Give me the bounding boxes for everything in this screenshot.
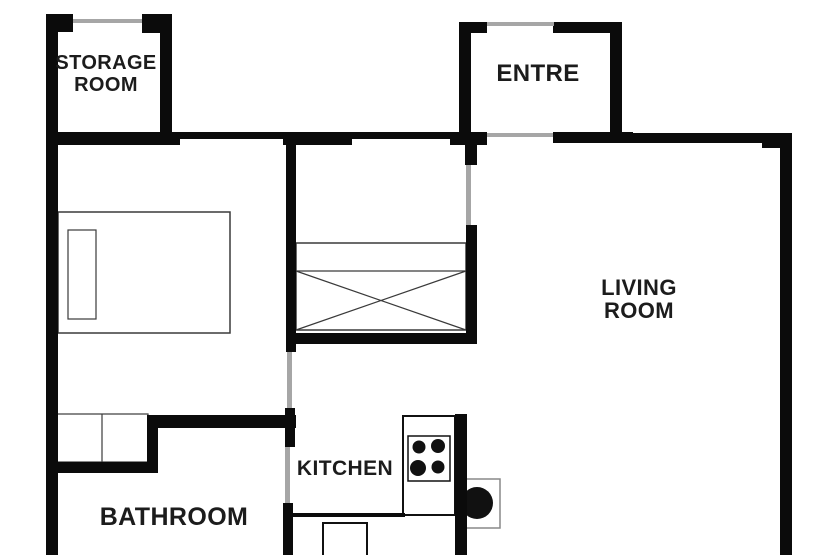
kitchen-label: KITCHEN	[297, 458, 393, 480]
top-wall-thin-2	[352, 132, 450, 139]
hall-living-door	[466, 165, 471, 225]
storage-top-left-tab	[46, 14, 73, 32]
hall-bottom-wall	[287, 333, 477, 344]
kitchen-left-wall-lower	[283, 503, 293, 555]
entre-left-wall	[459, 22, 471, 135]
bed-pillow	[68, 230, 96, 319]
stove-burner-1	[413, 441, 426, 454]
bathroom-west-wall	[57, 462, 158, 473]
hall-right-stub	[465, 143, 477, 165]
storage-room-label-line2: ROOM	[74, 74, 138, 96]
bathroom-top-wall	[148, 415, 296, 428]
kitchen-appliance	[323, 523, 367, 555]
entre-entry-door	[487, 22, 554, 26]
entre-label: ENTRE	[496, 62, 579, 86]
bathroom-label-line1: BATHROOM	[100, 503, 249, 531]
top-wall-thin-1	[180, 132, 283, 139]
bathroom-label: BATHROOM	[100, 504, 249, 530]
kitchen-label-line1: KITCHEN	[297, 457, 393, 480]
storage-room-label-line1: STORAGE	[55, 52, 156, 74]
living-room-label-line2: ROOM	[604, 298, 674, 323]
hall-left-wall	[286, 136, 296, 352]
entre-label-line1: ENTRE	[496, 60, 579, 87]
hall-right-wall	[466, 225, 477, 343]
bathroom-door	[285, 447, 290, 503]
top-wall-west	[46, 132, 180, 145]
floor-plan: STORAGE ROOM ENTRE LIVING ROOM KITCHEN B…	[0, 0, 831, 555]
bedroom-door	[287, 352, 292, 408]
entre-right-wall	[610, 22, 622, 135]
stove-burner-2	[431, 439, 445, 453]
storage-room-label: STORAGE ROOM	[55, 52, 156, 96]
kitchen-island-wall	[455, 414, 467, 555]
entre-living-opening	[487, 133, 553, 137]
entre-top-left-tab	[459, 22, 487, 33]
outer-right-wall	[780, 133, 792, 555]
entre-bottom-east-tab	[553, 132, 633, 143]
storage-right-wall	[160, 14, 172, 134]
storage-window	[73, 19, 142, 23]
wardrobe-body	[296, 243, 466, 330]
stove-burner-4	[432, 461, 445, 474]
stove-burner-3	[410, 460, 426, 476]
counter-bottom-edge	[290, 513, 405, 517]
living-room-label: LIVING ROOM	[601, 276, 677, 322]
living-room-label-line1: LIVING	[601, 275, 677, 300]
